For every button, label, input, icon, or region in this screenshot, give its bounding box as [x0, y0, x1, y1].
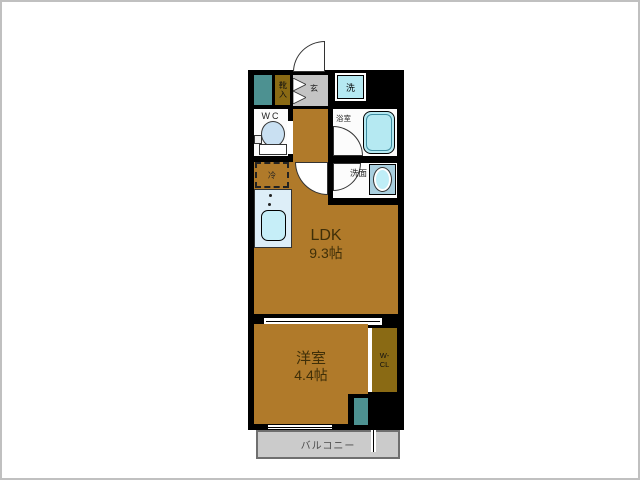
shoe-cabinet-label: 靴入 — [279, 81, 287, 99]
bedroom-label: 洋室 4.4帖 — [254, 350, 368, 383]
wc-label: WC — [254, 111, 288, 121]
fridge-label: 冷 — [268, 170, 276, 181]
closet-label-2: CL — [380, 360, 390, 369]
walk-in-closet: W- CL — [372, 328, 397, 392]
floor-plan-canvas: 靴入 玄 洗 WC 浴室 洗面 冷 LDK 9.3 — [0, 0, 640, 480]
ldk-name: LDK — [254, 227, 398, 245]
ldk-size: 9.3帖 — [254, 245, 398, 261]
washing-machine-label: 洗 — [337, 75, 364, 99]
ldk-label: LDK 9.3帖 — [254, 227, 398, 261]
balcony-divider — [371, 430, 376, 452]
entrance-label: 玄 — [307, 83, 321, 95]
bedroom-window — [268, 425, 332, 429]
entrance-door-arc-icon — [293, 41, 325, 72]
pipe-space-bottom — [354, 398, 368, 425]
vanity-sink-icon — [369, 164, 396, 195]
burner-icon — [269, 194, 272, 197]
shoe-cabinet-doors-icon — [293, 78, 306, 104]
toilet-tank-icon — [259, 144, 287, 155]
balcony: バルコニー — [256, 430, 400, 459]
shoe-cabinet: 靴入 — [275, 75, 290, 105]
toilet-cistern-icon — [254, 135, 262, 144]
bathtub-icon — [363, 111, 395, 154]
bedroom-name: 洋室 — [254, 350, 368, 367]
closet-label-1: W- — [380, 351, 389, 360]
balcony-label: バルコニー — [301, 437, 356, 452]
washroom-label: 洗面 — [350, 167, 367, 179]
room-bedroom-lower — [254, 394, 348, 424]
bedroom-size: 4.4帖 — [254, 367, 368, 383]
washing-machine-icon: 洗 — [334, 72, 367, 102]
bath-label: 浴室 — [336, 113, 351, 124]
burner-icon — [268, 203, 271, 206]
pipe-space-top — [254, 75, 272, 105]
fridge-space: 冷 — [255, 162, 289, 188]
